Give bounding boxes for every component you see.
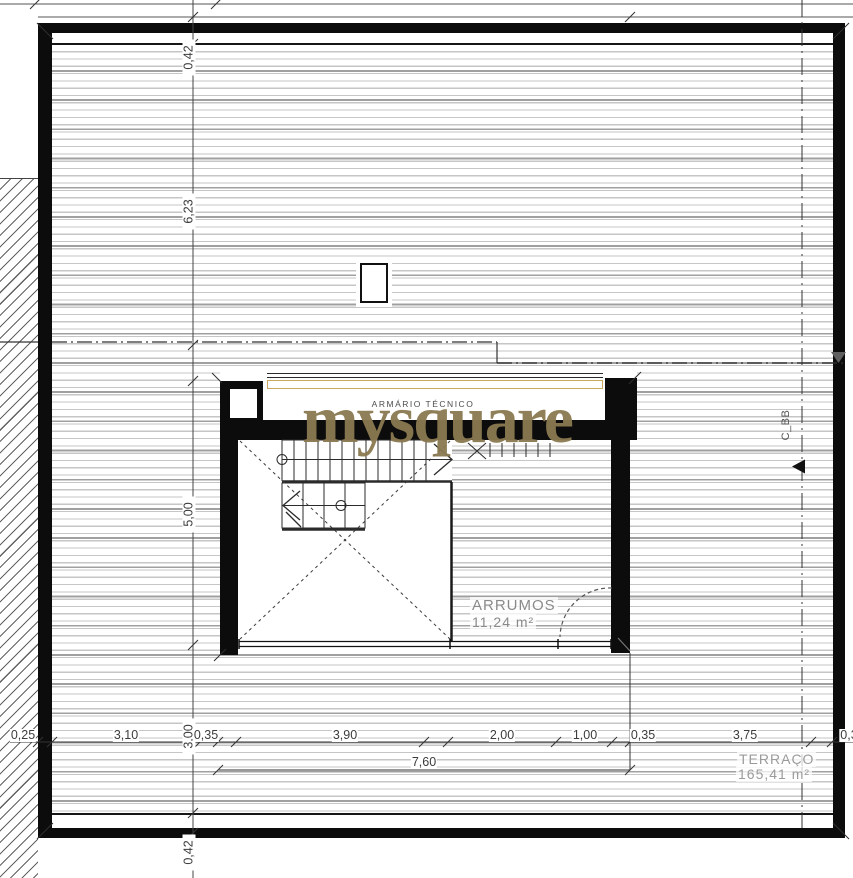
dim-v-0-42-bottom: 0,42	[183, 835, 196, 871]
section-line-horizontal	[0, 342, 845, 363]
stairwell-x-cross	[240, 441, 450, 639]
dim-h-0-35-a: 0,35	[193, 729, 219, 742]
room-label-terraco: TERRAÇO	[737, 751, 816, 767]
section-label: C_BB	[780, 403, 792, 447]
dimension-line-top	[0, 0, 853, 22]
room-area-terraco: 165,41 m²	[736, 766, 812, 782]
dim-h-3-10: 3,10	[113, 729, 139, 742]
room-label-arrumos: ARRUMOS	[470, 597, 558, 614]
dim-v-6-23: 6,23	[183, 194, 196, 230]
floor-plan-canvas: ARMÁRIO TÉCNICO ARRUMOS 11,24 m² TERRAÇO…	[0, 0, 853, 878]
room-area-arrumos: 11,24 m²	[470, 614, 536, 630]
dim-h-2-00: 2,00	[489, 729, 515, 742]
section-arrow-down-icon	[831, 352, 846, 363]
dim-h-1-00: 1,00	[572, 729, 598, 742]
dim-h-0-35-b: 0,35	[630, 729, 656, 742]
dim-v-0-42-top: 0,42	[183, 40, 196, 76]
dim-h-0-25: 0,25	[10, 729, 36, 742]
dim-h-3-90: 3,90	[332, 729, 358, 742]
dim-h-3-75: 3,75	[732, 729, 758, 742]
dim-h-0-3-clipped: 0,3	[839, 729, 853, 742]
dim-h-7-60: 7,60	[411, 756, 437, 769]
section-arrow-left-icon	[792, 460, 805, 474]
glazing-band	[239, 639, 612, 649]
structure-corner-bevel	[618, 638, 630, 651]
door-swing-arc	[560, 588, 612, 637]
watermark: mysquare	[302, 385, 572, 453]
stair-lower-flight	[282, 483, 365, 530]
dim-v-5-00: 5,00	[183, 497, 196, 533]
